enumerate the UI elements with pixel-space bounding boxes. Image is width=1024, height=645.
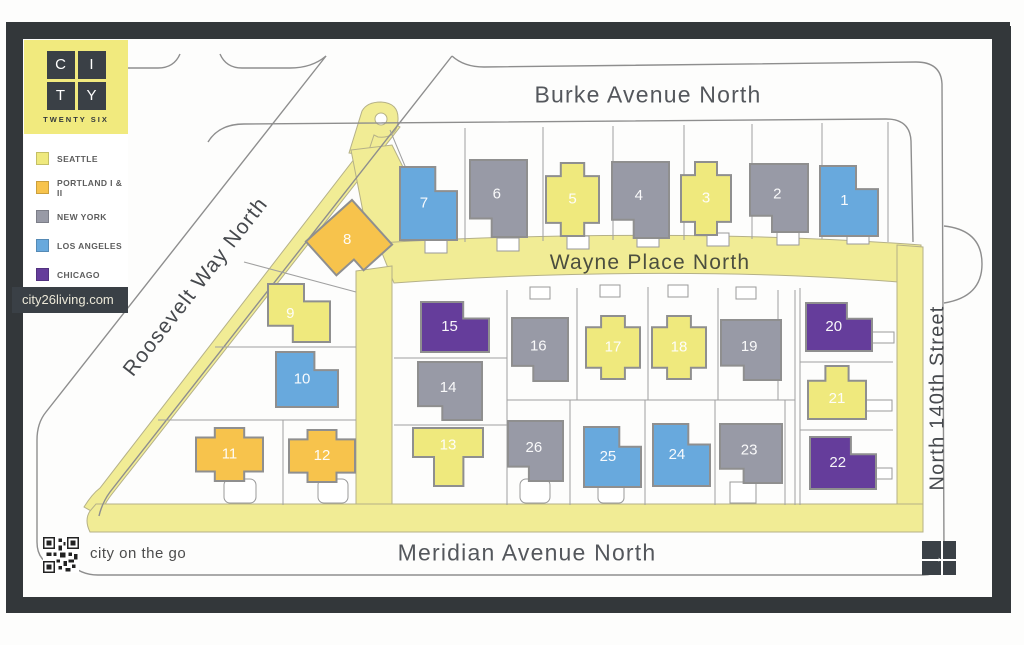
north-arrow-icon: → xyxy=(922,541,956,575)
street-label-wayne: Wayne Place North xyxy=(550,251,751,275)
house-number: 23 xyxy=(741,442,758,459)
legend: SEATTLEPORTLAND I & IINEW YORKLOS ANGELE… xyxy=(24,134,128,297)
house-lot-21[interactable]: 21 xyxy=(808,366,866,419)
house-number: 6 xyxy=(493,186,501,203)
house-number: 7 xyxy=(420,194,428,211)
road-middle-alley xyxy=(356,266,392,521)
house-number: 17 xyxy=(605,338,622,355)
legend-swatch-losangeles xyxy=(36,239,49,252)
house-footprint[interactable] xyxy=(268,284,330,342)
house-lot-26[interactable]: 26 xyxy=(508,421,563,481)
house-lot-7[interactable]: 7 xyxy=(400,167,457,240)
house-lot-18[interactable]: 18 xyxy=(652,316,706,379)
house-number: 3 xyxy=(702,189,710,206)
legend-label: NEW YORK xyxy=(57,212,107,222)
house-lot-6[interactable]: 6 xyxy=(470,160,527,237)
house-lot-11[interactable]: 11 xyxy=(196,428,263,481)
house-number: 2 xyxy=(773,186,781,203)
house-lot-22[interactable]: 22 xyxy=(810,437,876,489)
house-lot-17[interactable]: 17 xyxy=(586,316,640,379)
house-number: 20 xyxy=(825,318,842,335)
road-south-alley xyxy=(87,504,923,532)
legend-swatch-portland xyxy=(36,181,49,194)
legend-item-seattle: SEATTLE xyxy=(36,144,128,173)
house-number: 14 xyxy=(440,379,457,396)
house-number: 9 xyxy=(286,305,294,322)
legend-item-newyork: NEW YORK xyxy=(36,202,128,231)
legend-label: SEATTLE xyxy=(57,154,98,164)
logo-letter-y: Y xyxy=(78,82,106,110)
house-number: 25 xyxy=(600,448,617,465)
house-lot-10[interactable]: 10 xyxy=(276,352,338,407)
house-lot-14[interactable]: 14 xyxy=(418,362,482,420)
street-label-meridian: Meridian Avenue North xyxy=(398,540,657,567)
legend-swatch-chicago xyxy=(36,268,49,281)
legend-item-portland: PORTLAND I & II xyxy=(36,173,128,202)
city26-logo: CITY TWENTY SIX xyxy=(24,40,128,134)
legend-item-chicago: CHICAGO xyxy=(36,260,128,289)
legend-swatch-seattle xyxy=(36,152,49,165)
house-number: 22 xyxy=(829,454,846,471)
house-lot-20[interactable]: 20 xyxy=(806,303,872,351)
street-label-north-140th: North 140th Street xyxy=(927,305,950,490)
house-number: 18 xyxy=(671,338,688,355)
house-number: 19 xyxy=(741,338,758,355)
legend-swatch-newyork xyxy=(36,210,49,223)
house-number: 10 xyxy=(294,370,311,387)
arrow-glyph: → xyxy=(929,549,944,566)
house-lot-25[interactable]: 25 xyxy=(584,427,641,487)
house-number: 15 xyxy=(441,318,458,335)
legend-item-losangeles: LOS ANGELES xyxy=(36,231,128,260)
house-number: 16 xyxy=(530,337,547,354)
tagline: city on the go xyxy=(90,545,186,562)
house-lot-2[interactable]: 2 xyxy=(750,164,808,232)
house-footprint[interactable] xyxy=(400,167,457,240)
brand-panel: CITY TWENTY SIX SEATTLEPORTLAND I & IINE… xyxy=(24,40,128,297)
house-lot-12[interactable]: 12 xyxy=(289,430,355,482)
house-number: 24 xyxy=(669,446,686,463)
house-lot-9[interactable]: 9 xyxy=(268,284,330,342)
house-lot-4[interactable]: 4 xyxy=(612,162,669,238)
legend-label: LOS ANGELES xyxy=(57,241,122,251)
house-number: 13 xyxy=(440,436,457,453)
legend-label: CHICAGO xyxy=(57,270,100,280)
house-lot-13[interactable]: 13 xyxy=(413,428,483,486)
logo-letter-i: I xyxy=(78,51,106,79)
house-lot-19[interactable]: 19 xyxy=(721,320,781,380)
houses-layer: 1234567891011121314151617181920212223242… xyxy=(196,160,878,489)
website-bar[interactable]: city26living.com xyxy=(12,287,128,313)
house-number: 21 xyxy=(829,390,846,407)
house-lot-16[interactable]: 16 xyxy=(512,318,568,381)
house-lot-5[interactable]: 5 xyxy=(546,163,599,236)
house-lot-24[interactable]: 24 xyxy=(653,424,710,486)
logo-letter-c: C xyxy=(47,51,75,79)
legend-label: PORTLAND I & II xyxy=(57,178,128,198)
house-number: 8 xyxy=(343,231,351,248)
house-number: 11 xyxy=(222,445,238,462)
house-lot-1[interactable]: 1 xyxy=(820,166,878,236)
house-number: 4 xyxy=(635,187,643,204)
road-east-alley xyxy=(897,245,923,532)
house-lot-3[interactable]: 3 xyxy=(681,162,731,235)
house-number: 5 xyxy=(568,190,576,207)
house-footprint[interactable] xyxy=(820,166,878,236)
logo-subtitle: TWENTY SIX xyxy=(43,115,109,124)
street-label-burke: Burke Avenue North xyxy=(534,82,761,109)
house-lot-15[interactable]: 15 xyxy=(421,302,489,352)
house-number: 12 xyxy=(314,447,331,464)
qr-code-icon[interactable] xyxy=(43,537,79,573)
house-number: 1 xyxy=(840,192,848,209)
house-lot-23[interactable]: 23 xyxy=(720,424,782,483)
house-number: 26 xyxy=(526,439,543,456)
logo-letter-t: T xyxy=(47,82,75,110)
logo-letter-grid: CITY xyxy=(47,51,106,110)
